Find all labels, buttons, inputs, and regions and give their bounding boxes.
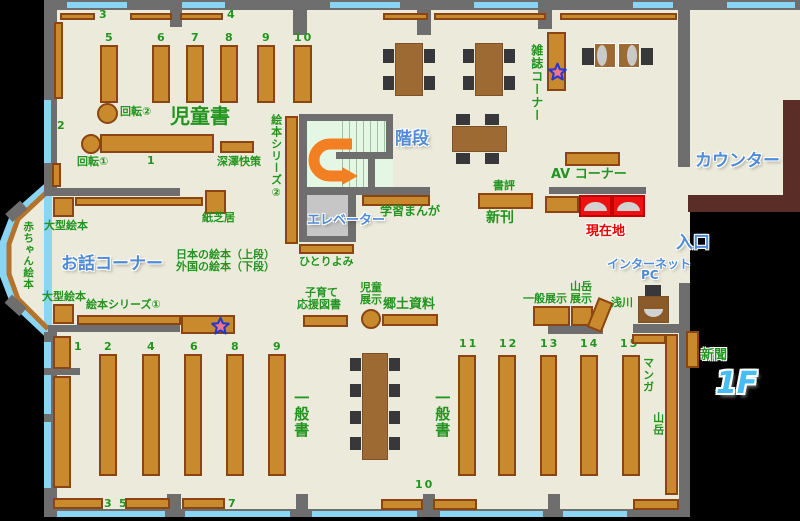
shelf-number: 10 [294,32,313,45]
shelf-number: 2 [57,120,65,133]
shelf-number: 9 [273,341,281,354]
top-window-5 [633,2,673,8]
shelf-top-3a [60,13,95,20]
floor-number-label: 1F [716,366,757,401]
shelf-number: 1 [74,341,82,354]
right-wall-upper [678,0,690,167]
elevator-bottom-wall [299,236,356,242]
bottom-center-shelf-b [433,499,477,510]
reading-table-2 [475,43,503,96]
av-back-wall [549,187,646,194]
shelf-number: 7 [191,32,199,45]
manga-top-shelf [632,334,666,344]
picture-series1-label: 絵本シリーズ① [86,299,161,312]
hitoriyomi-shelf [299,244,354,254]
shelf-number: 10 [415,479,434,492]
kamishibai-shelf-long [75,197,203,206]
left-window-lower-1 [44,342,51,414]
shelf-number: 11 [459,338,478,351]
counter-desk-horizontal [688,195,800,212]
top-window-6 [727,2,795,8]
shelf-next-to-current [545,196,579,213]
shelf-top-b [383,13,428,20]
bottom-right-shelf [633,499,679,510]
general-shelf-7 [182,498,225,509]
study-table [362,353,388,460]
rotating-shelf-1-label: 回転① [77,156,108,169]
shelf-number: 5 [105,32,113,45]
new-books-shelf [478,193,533,209]
reading-table-1 [395,43,423,96]
shelf-top-d [560,13,677,20]
elevator-label: エレベーター [307,209,385,228]
shelf-number: 3 [104,498,112,511]
chair [424,76,435,90]
top-window-4 [474,2,548,8]
magazine-corner-label: 雑誌コーナー [529,44,543,122]
shelf-number: 7 [228,498,236,511]
reviews-label: 書評 [493,180,515,193]
elevator-left-wall [299,195,307,241]
mountain-exhibit-label-line2: 展示 [570,293,592,306]
shelf-number: 6 [157,32,165,45]
children-shelf-5 [100,45,118,103]
bottom-window-2 [185,511,290,517]
general-shelf-14 [580,355,598,476]
fukazawa-shelf [220,141,254,153]
top-wall-post-2 [293,0,307,35]
general-shelf-5 [125,498,170,509]
left-wall-small-shelf [52,163,61,187]
stairs-right-edge [386,121,393,159]
bottom-wall-post-2 [296,494,308,514]
picture-series2-shelf [285,116,298,244]
shelf-number: 3 [99,9,107,22]
shelf-top-4a [180,13,223,20]
general-shelf-1a [53,336,71,369]
mountain-label: 山岳 [651,412,664,442]
child-exhibit-table [361,309,381,329]
general-shelf-13 [540,355,557,476]
fukazawa-label: 深澤快策 [217,156,261,169]
top-window-1 [67,2,127,8]
shelf-number: 14 [580,338,599,351]
shelf-top-c [434,13,546,20]
shelf-number: 8 [225,32,233,45]
chair [383,76,394,90]
large-picture-book-label-top: 大型絵本 [44,220,88,233]
stairs-top-wall [299,114,393,121]
large-picture-book-label-bottom: 大型絵本 [42,291,86,304]
bottom-center-shelf-a [381,499,423,510]
general-shelf-3 [53,498,103,509]
rotating-shelf-2-label: 回転② [120,106,151,119]
top-window-2 [182,2,225,8]
large-picture-book-shelf-bottom [53,304,74,324]
stairs-label: 階段 [395,124,429,149]
bottom-window-4 [440,511,543,517]
shelf-number: 6 [190,341,198,354]
rotating-shelf-1 [81,134,101,154]
children-shelf-1 [100,134,214,153]
left-window-upper [44,100,51,163]
bottom-window-1 [57,511,165,517]
general-shelf-9 [268,354,286,476]
story-corner-bottom-wall [48,325,180,332]
shelf-left-vertical-small [54,22,63,99]
general-exhibit-label: 一般展示 [523,293,567,306]
chair [350,358,361,371]
large-picture-book-shelf-top [53,197,74,217]
chair [424,49,435,63]
general-shelf-12 [498,355,516,476]
study-manga-label: 学習まんが [380,205,440,219]
general-shelf-2 [99,354,117,476]
chair [383,49,394,63]
chair [504,76,515,90]
children-shelf-6 [152,45,170,103]
chair [463,49,474,63]
bottom-window-3 [312,511,417,517]
shelf-number: 8 [231,341,239,354]
chair [350,437,361,450]
shelf-number: 2 [104,341,112,354]
chair [389,437,400,450]
asakawa-label: 浅川 [611,297,633,310]
baby-books-label: 赤ちゃん絵本 [22,221,34,296]
general-shelf-4 [142,354,160,476]
left-shelf-divider-wall [44,368,80,375]
reading-table-3 [452,126,507,152]
chair [463,76,474,90]
shelf-number: 13 [540,338,559,351]
children-shelf-10 [293,45,312,103]
story-corner-label: お話コーナー [61,249,163,274]
shelf-number: 1 [147,155,155,168]
shelf-number: 4 [147,341,155,354]
pc-monitor [645,285,661,296]
shelf-number: 4 [227,9,235,22]
sofa-cushion-2 [627,45,637,66]
current-location-label: 現在地 [586,220,625,239]
chair [389,411,400,424]
u-turn-arrow-icon [300,130,370,192]
right-wall-lower [679,283,690,517]
av-corner-label: AV コーナー [551,168,627,183]
general-shelf-1b [53,376,71,488]
sofa-cushion-1 [597,45,607,66]
newspaper-shelf [686,331,699,368]
chair [456,114,470,125]
sofa-side-table-right [641,48,653,65]
children-shelf-8 [220,45,238,103]
child-exhibit-label-line2: 展示 [360,294,382,307]
hitoriyomi-label: ひとりよみ [299,256,354,269]
kamishibai-label: 紙芝居 [202,212,235,225]
parenting-shelf [303,315,348,327]
bottom-wall-post-4 [548,494,560,514]
shelf-top-3b [130,13,172,20]
shelf-number: 9 [262,32,270,45]
parenting-label-line2: 応援図書 [297,299,341,312]
chair [456,153,470,164]
top-window-3 [330,2,400,8]
general-exhibit-shelf [533,306,570,326]
internet-pc-label-line2: PC [641,268,659,282]
children-shelf-9 [257,45,275,103]
pc-back-wall [633,324,685,333]
local-materials-label: 郷土資料 [383,298,435,313]
general-shelf-8 [226,354,244,476]
children-area-label: 児童書 [170,105,230,128]
story-corner-top-wall [44,188,180,196]
newspaper-label: 新聞 [701,349,727,364]
chair [485,114,499,125]
children-shelf-7 [186,45,204,103]
chair [389,384,400,397]
star-icon-magazine [547,62,568,83]
shelf-number: 5 [119,498,127,511]
general-books-label-left: 一般書 [292,390,309,442]
left-window-lower-2 [44,422,51,488]
entrance-label: 入口 [676,228,710,253]
library-floor-map: 3 4 5 6 7 8 9 10 回転② 児童書 2 回転① 1 深澤快策 絵本… [0,0,800,521]
foreign-books-label: 外国の絵本（下段） [176,261,275,274]
chair [504,49,515,63]
chair [485,153,499,164]
chair [350,384,361,397]
counter-label: カウンター [695,146,780,171]
shelf-number: 12 [499,338,518,351]
new-books-label: 新刊 [486,210,514,226]
picture-series1-shelf-long [77,315,181,325]
bottom-window-5 [563,511,627,517]
rotating-shelf-2 [97,103,118,124]
chair [350,411,361,424]
sofa-side-table-left [582,48,594,65]
general-books-label-right: 一般書 [433,390,450,442]
manga-label: マンガ [641,357,654,401]
picture-series2-label: 絵本シリーズ② [269,114,282,232]
manga-wall-shelf [665,334,678,495]
local-materials-shelf [382,314,438,326]
general-shelf-11 [458,355,476,476]
general-shelf-15 [622,355,640,476]
av-shelf [565,152,620,166]
general-shelf-6 [184,354,202,476]
star-icon-picture-series [210,316,231,337]
chair [389,358,400,371]
